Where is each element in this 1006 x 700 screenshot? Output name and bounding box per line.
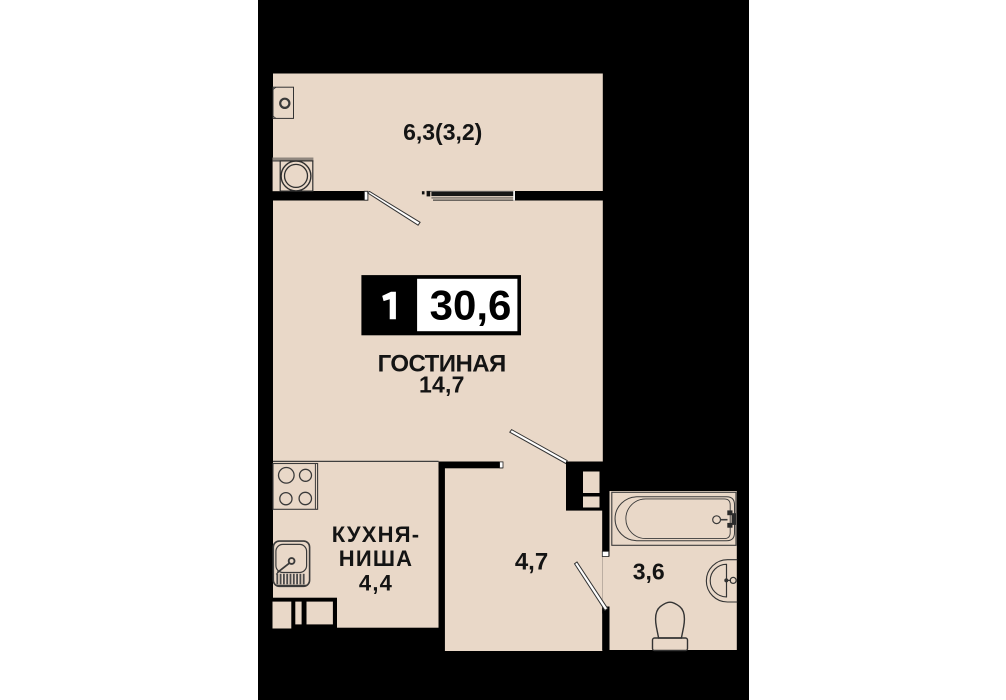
svg-text:НИША: НИША xyxy=(339,546,414,571)
svg-text:3,6: 3,6 xyxy=(633,558,665,584)
svg-text:4,7: 4,7 xyxy=(515,548,548,575)
svg-text:6,3(3,2): 6,3(3,2) xyxy=(403,119,482,145)
svg-text:30,6: 30,6 xyxy=(430,281,512,328)
svg-text:4,4: 4,4 xyxy=(359,570,393,595)
svg-text:14,7: 14,7 xyxy=(419,372,465,398)
svg-text:КУХНЯ-: КУХНЯ- xyxy=(332,522,421,547)
